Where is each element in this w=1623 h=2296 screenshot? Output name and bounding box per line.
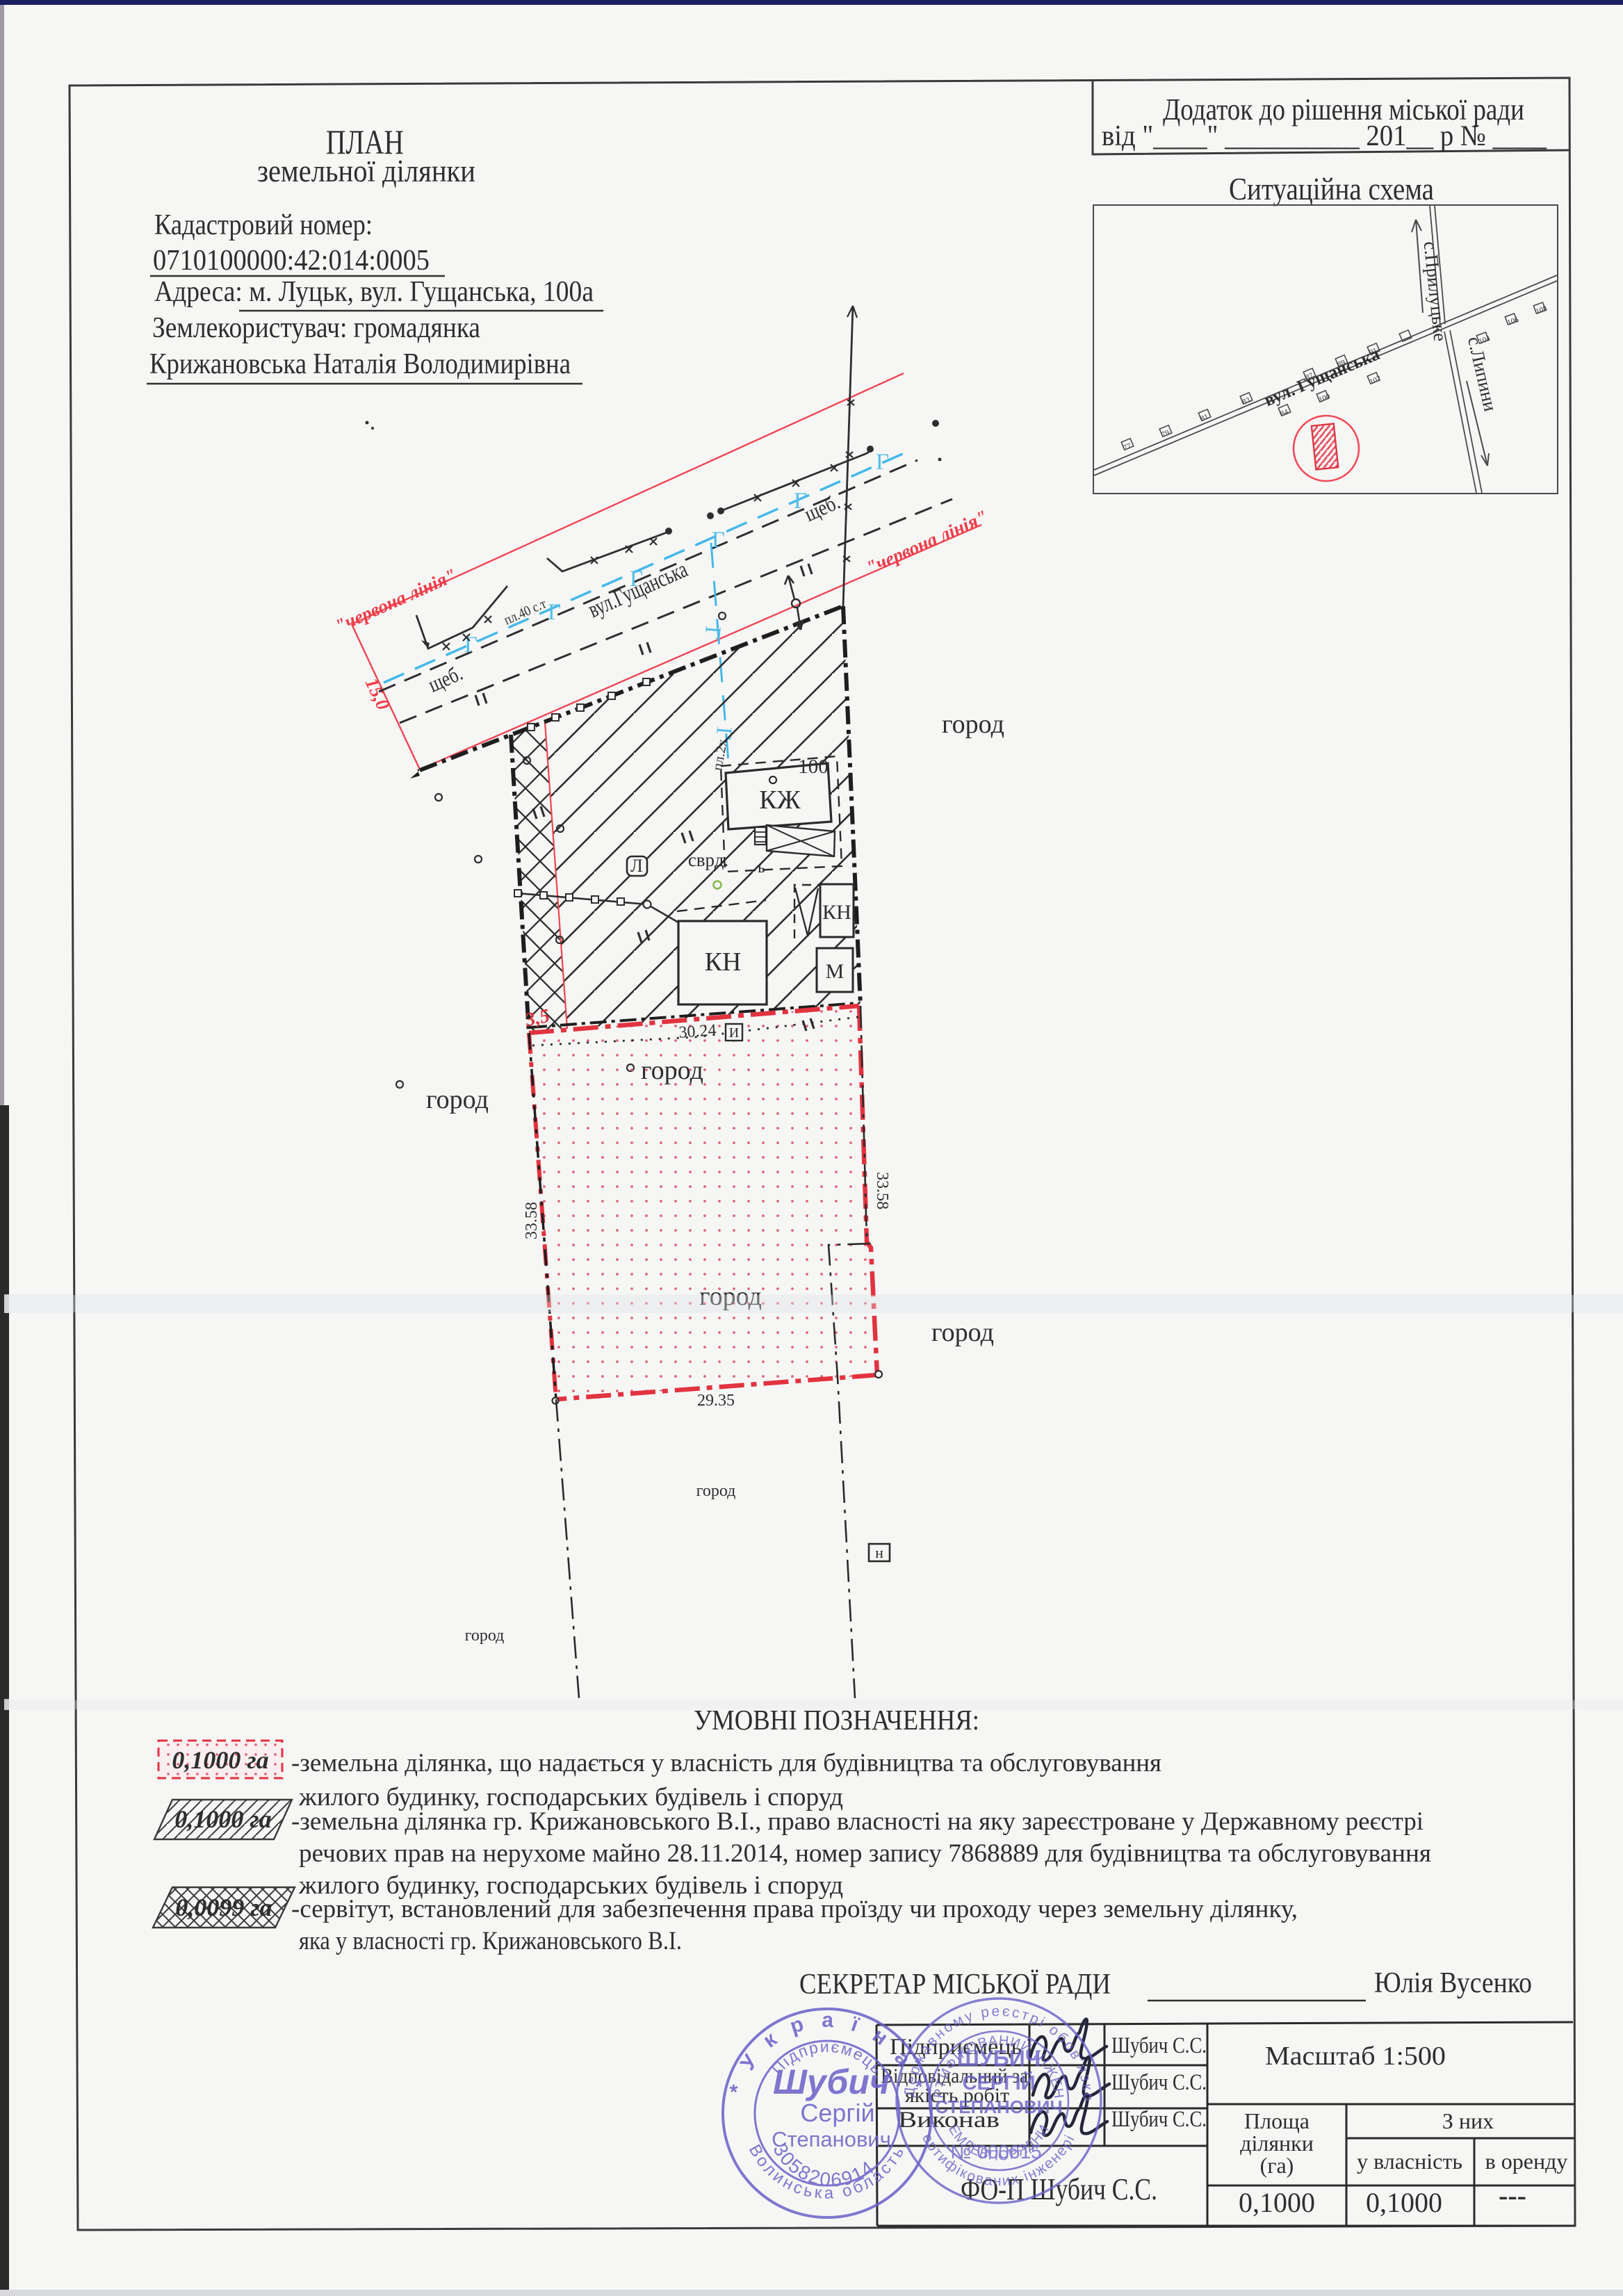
svg-text:Шубич: Шубич bbox=[773, 2062, 890, 2101]
svg-text:0,1000: 0,1000 bbox=[1366, 2187, 1442, 2218]
svg-text:КН: КН bbox=[822, 901, 851, 924]
svg-text:0,1000 га: 0,1000 га bbox=[172, 1746, 268, 1774]
svg-text:33.58: 33.58 bbox=[873, 1172, 891, 1210]
svg-text:Землекористувач: громадянка: Землекористувач: громадянка bbox=[152, 312, 480, 344]
svg-text:Г: Г bbox=[712, 528, 725, 553]
svg-text:н: н bbox=[875, 1544, 883, 1561]
svg-text:33.58: 33.58 bbox=[523, 1202, 541, 1239]
svg-text:сврд.: сврд. bbox=[688, 849, 728, 870]
svg-text:Юлія Вусенко: Юлія Вусенко bbox=[1374, 1967, 1532, 1999]
svg-text:у власність: у власність bbox=[1357, 2149, 1462, 2174]
svg-text:Шубич С.С.: Шубич С.С. bbox=[1111, 2107, 1207, 2132]
svg-text:---: --- bbox=[1499, 2180, 1526, 2211]
svg-text:Г: Г bbox=[700, 625, 726, 640]
svg-text:город: город bbox=[696, 1482, 736, 1500]
svg-text:Г: Г bbox=[548, 600, 561, 625]
svg-text:И: И bbox=[729, 1025, 739, 1041]
svg-text:З них: З них bbox=[1442, 2108, 1494, 2133]
svg-text:0,0099 га: 0,0099 га bbox=[175, 1894, 272, 1921]
svg-text:СЕКРЕТАР МІСЬКОЇ РАДИ: СЕКРЕТАР МІСЬКОЇ РАДИ bbox=[799, 1969, 1111, 2001]
svg-text:город: город bbox=[465, 1627, 505, 1645]
svg-text:КН: КН bbox=[705, 947, 742, 977]
svg-text:ШУБИЧ: ШУБИЧ bbox=[957, 2046, 1041, 2071]
svg-text:Адреса: м. Луцьк, вул. Гущансь: Адреса: м. Луцьк, вул. Гущанська, 100а bbox=[154, 276, 594, 308]
svg-text:город: город bbox=[641, 1056, 703, 1085]
svg-text:город: город bbox=[931, 1318, 994, 1347]
svg-text:Кадастровий номер:: Кадастровий номер: bbox=[154, 209, 373, 241]
svg-text:29.35: 29.35 bbox=[697, 1392, 735, 1410]
svg-text:Площа: Площа bbox=[1244, 2108, 1310, 2133]
svg-text:(га): (га) bbox=[1260, 2153, 1294, 2178]
svg-text:в оренду: в оренду bbox=[1485, 2149, 1568, 2174]
svg-text:земельної ділянки: земельної ділянки bbox=[257, 153, 475, 188]
svg-text:100: 100 bbox=[798, 756, 829, 778]
svg-text:Шубич С.С.: Шубич С.С. bbox=[1111, 2033, 1207, 2058]
svg-text:СТЕПАНОВИЧ: СТЕПАНОВИЧ bbox=[935, 2096, 1063, 2117]
svg-text:ділянки: ділянки bbox=[1240, 2131, 1314, 2156]
svg-text:ь: ь bbox=[758, 858, 765, 877]
svg-text:від "____" __________ 201__ р: від "____" __________ 201__ р № ____ bbox=[1102, 120, 1547, 152]
svg-text:Крижановська Наталія Володимир: Крижановська Наталія Володимирівна bbox=[149, 348, 571, 380]
svg-text:-земельна ділянка гр. Крижанов: -земельна ділянка гр. Крижановського В.І… bbox=[291, 1807, 1424, 1836]
svg-text:№ 000615: № 000615 bbox=[950, 2141, 1041, 2163]
svg-text:речових прав на нерухоме майно: речових прав на нерухоме майно 28.11.201… bbox=[299, 1839, 1431, 1868]
svg-text:Шубич С.С.: Шубич С.С. bbox=[1111, 2070, 1207, 2095]
svg-text:0710100000:42:014:0005: 0710100000:42:014:0005 bbox=[153, 245, 430, 277]
svg-text:Масштаб 1:500: Масштаб 1:500 bbox=[1265, 2042, 1446, 2071]
svg-text:город: город bbox=[942, 710, 1004, 739]
svg-text:Г: Г bbox=[876, 450, 889, 475]
svg-text:-сервітут, встановлений для за: -сервітут, встановлений для забезпечення… bbox=[291, 1895, 1298, 1923]
svg-text:30.24: 30.24 bbox=[678, 1021, 717, 1042]
svg-text:Ситуаційна схема: Ситуаційна схема bbox=[1229, 172, 1434, 206]
svg-text:0,1000: 0,1000 bbox=[1239, 2187, 1315, 2218]
svg-text:-земельна ділянка, що надаєтьс: -земельна ділянка, що надається у власні… bbox=[291, 1749, 1161, 1777]
svg-text:яка у власності гр. Крижановсь: яка у власності гр. Крижановського В.І. bbox=[299, 1927, 682, 1955]
svg-text:Сергій: Сергій bbox=[800, 2099, 874, 2127]
svg-text:КЖ: КЖ bbox=[759, 785, 801, 815]
svg-text:Л: Л bbox=[630, 856, 643, 876]
svg-text:город: город bbox=[426, 1085, 489, 1114]
svg-text:0,1000 га: 0,1000 га bbox=[174, 1805, 271, 1833]
svg-text:М: М bbox=[826, 960, 845, 983]
svg-text:СЕРГІЙ: СЕРГІЙ bbox=[963, 2071, 1036, 2094]
